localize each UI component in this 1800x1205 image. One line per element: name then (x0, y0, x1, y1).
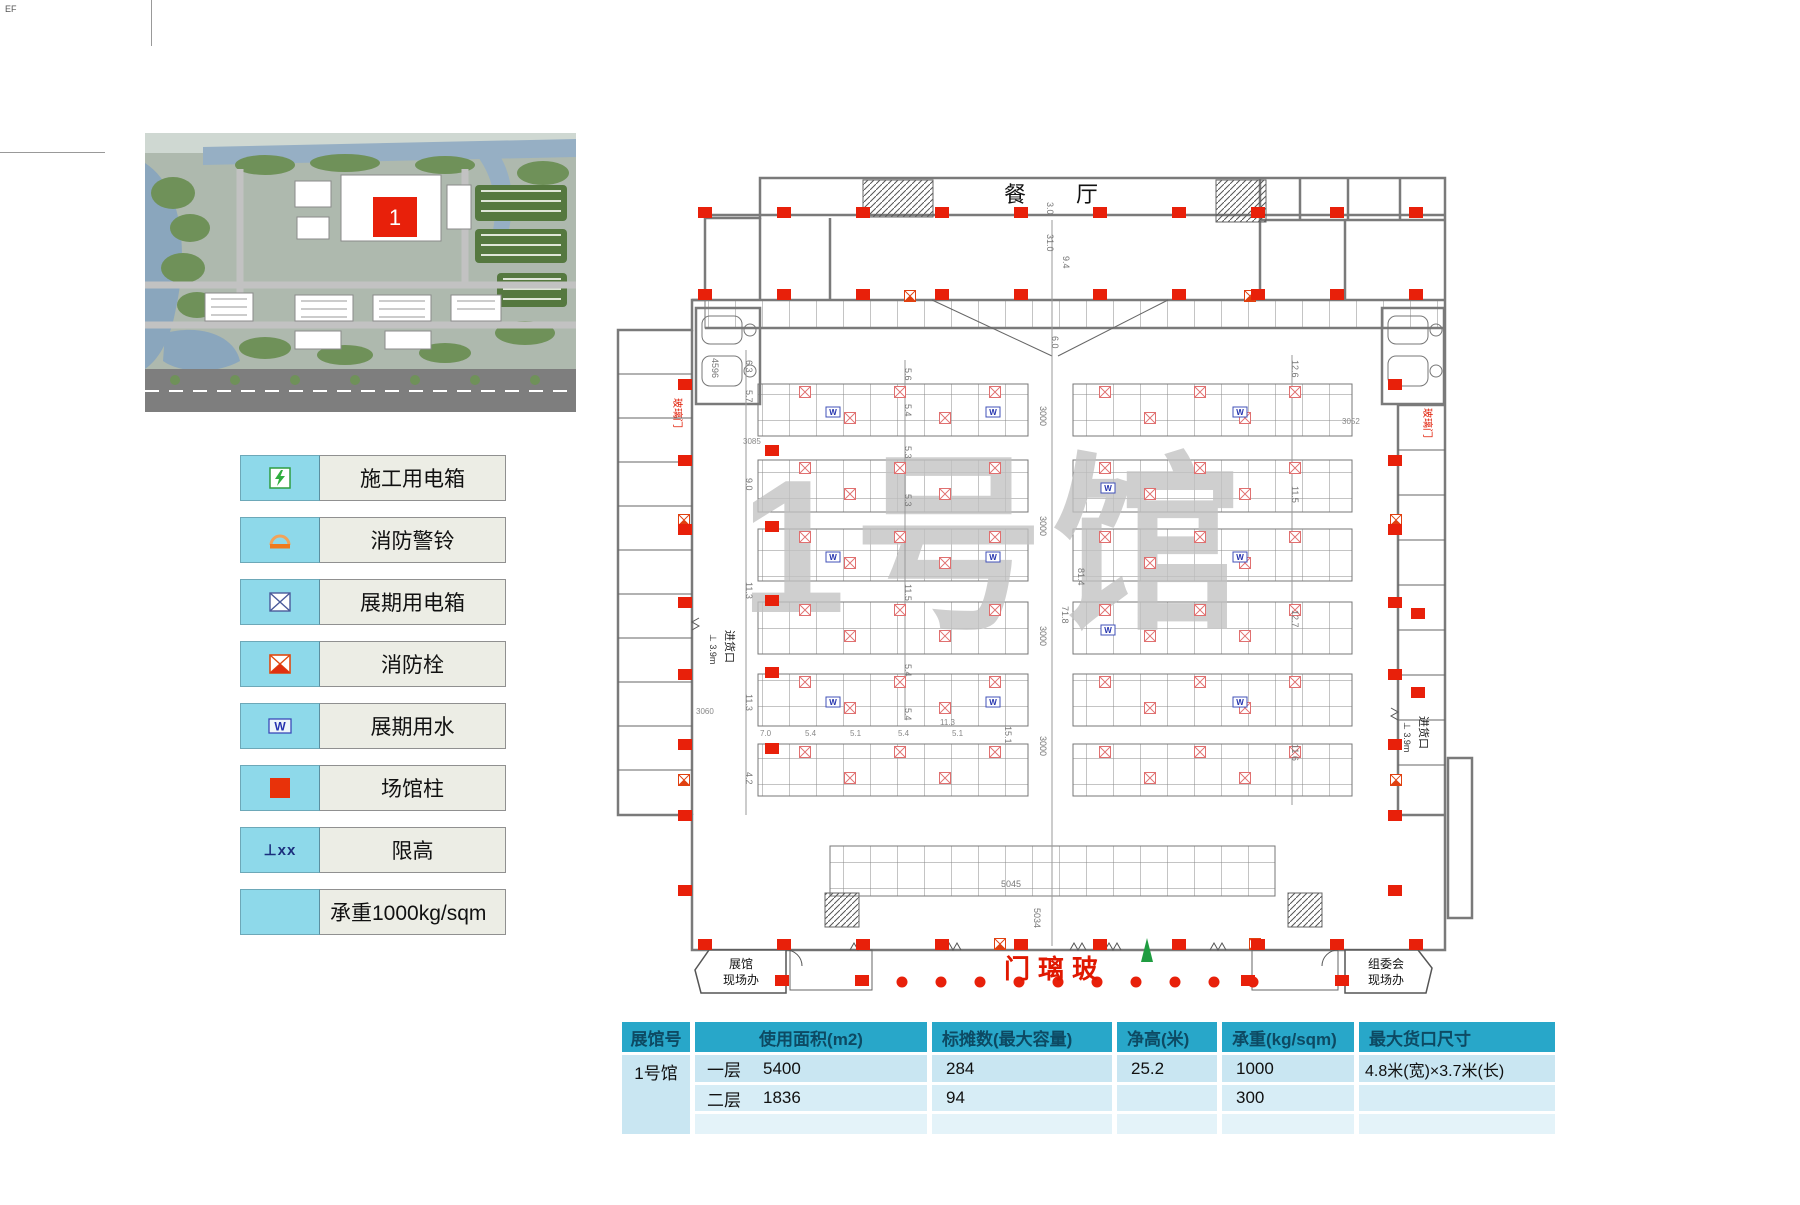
crop-mark-vertical (151, 0, 152, 46)
svg-text:5.4: 5.4 (903, 404, 913, 417)
svg-text:5.4: 5.4 (898, 729, 910, 738)
booths-value: 284 (932, 1055, 1112, 1082)
red-square-icon (240, 765, 320, 811)
legend-label: 场馆柱 (320, 765, 506, 811)
col-header-height: 净高(米) (1117, 1022, 1217, 1052)
svg-text:11.5: 11.5 (1290, 486, 1300, 503)
booths-value: 94 (932, 1085, 1112, 1111)
height-limit-icon: ⊥xx (240, 827, 320, 873)
svg-text:12.6: 12.6 (1290, 360, 1300, 378)
spec-table: 展馆号 使用面积(m2) 标摊数(最大容量) 净高(米) 承重(kg/sqm) … (622, 1022, 1555, 1134)
svg-text:展馆: 展馆 (729, 956, 753, 971)
legend-label: 限高 (320, 827, 506, 873)
water-box-icon: W (240, 703, 320, 749)
table-empty-cell (1359, 1114, 1555, 1134)
svg-text:3000: 3000 (1038, 626, 1048, 646)
svg-text:5.4: 5.4 (903, 664, 913, 677)
svg-text:3060: 3060 (696, 707, 714, 716)
svg-text:3000: 3000 (1038, 406, 1048, 426)
svg-text:6.3: 6.3 (744, 360, 754, 373)
svg-text:12.7: 12.7 (1290, 610, 1300, 628)
glass-door-label: 门璃玻 (1004, 954, 1106, 984)
svg-text:5034: 5034 (1032, 908, 1042, 928)
col-header-gate: 最大货口尺寸 (1359, 1022, 1555, 1052)
site-map: 1 (145, 133, 576, 412)
svg-text:71.8: 71.8 (1060, 606, 1070, 624)
svg-text:3085: 3085 (743, 437, 761, 446)
legend-row-exhibition-power: 展期用电箱 (240, 579, 506, 625)
svg-text:5.3: 5.3 (903, 494, 913, 507)
svg-text:现场办: 现场办 (1368, 972, 1404, 987)
hall-name-cell: 1号馆 (622, 1055, 690, 1134)
table-empty-cell (695, 1114, 927, 1134)
hydrant-icon (240, 641, 320, 687)
hall-1-map-label: 1 (389, 205, 401, 230)
blank-cyan-icon (240, 889, 320, 935)
table-empty-cell (1222, 1114, 1354, 1134)
legend-label: 施工用电箱 (320, 455, 506, 501)
height-value (1117, 1085, 1217, 1111)
gate-size-value: 4.8米(宽)×3.7米(长) (1359, 1055, 1555, 1082)
loading-dock-right-label: 进货口 (1417, 716, 1431, 749)
legend-label: 承重1000kg/sqm (320, 889, 506, 935)
svg-text:5.4: 5.4 (805, 729, 817, 738)
load-value: 1000 (1222, 1055, 1354, 1082)
legend: 施工用电箱 消防警铃 展期用电箱 (240, 455, 506, 951)
crop-mark-horizontal (0, 152, 105, 153)
corner-mark: EF (5, 4, 17, 14)
glass-door-right-label: 玻璃门 (1421, 408, 1434, 438)
load-value: 300 (1222, 1085, 1354, 1111)
table-row: 一层 5400 (695, 1055, 927, 1082)
site-map-image: 1 (145, 133, 576, 412)
col-header-load: 承重(kg/sqm) (1222, 1022, 1354, 1052)
svg-text:15.1: 15.1 (1003, 726, 1013, 744)
floor-label: 一层 (695, 1056, 763, 1081)
table-empty-cell (1117, 1114, 1217, 1134)
svg-text:4.2: 4.2 (744, 772, 754, 785)
svg-text:5.1: 5.1 (850, 729, 862, 738)
svg-text:5.4: 5.4 (903, 708, 913, 721)
floor-plan: W 1号馆 (600, 160, 1480, 1020)
legend-row-load-capacity: 承重1000kg/sqm (240, 889, 506, 935)
svg-text:11.3: 11.3 (744, 694, 754, 711)
svg-text:3052: 3052 (1342, 417, 1360, 426)
svg-text:现场办: 现场办 (723, 972, 759, 987)
svg-text:5.3: 5.3 (903, 446, 913, 459)
svg-text:7.0: 7.0 (760, 729, 772, 738)
svg-text:9.4: 9.4 (1061, 256, 1071, 269)
col-header-area: 使用面积(m2) (695, 1022, 927, 1052)
floor-label: 二层 (695, 1086, 763, 1111)
svg-text:11.5: 11.5 (903, 584, 913, 601)
svg-text:9.0: 9.0 (744, 478, 754, 491)
legend-row-fire-bell: 消防警铃 (240, 517, 506, 563)
loading-height-right: ⊥ 3.9m (1402, 722, 1412, 752)
svg-text:W: W (274, 720, 286, 734)
svg-text:11.3: 11.3 (940, 718, 956, 727)
area-value: 1836 (763, 1088, 801, 1108)
svg-text:组委会: 组委会 (1368, 957, 1404, 971)
height-value: 25.2 (1117, 1055, 1217, 1082)
svg-text:5.6: 5.6 (903, 368, 913, 381)
table-empty-cell (932, 1114, 1112, 1134)
svg-text:5.7: 5.7 (744, 390, 754, 403)
svg-text:4596: 4596 (710, 358, 720, 378)
loading-dock-left-label: 进货口 (723, 630, 737, 663)
svg-text:3000: 3000 (1038, 736, 1048, 756)
legend-row-fire-hydrant: 消防栓 (240, 641, 506, 687)
lightning-icon (240, 455, 320, 501)
svg-text:3000: 3000 (1038, 516, 1048, 536)
svg-text:6.0: 6.0 (1050, 336, 1060, 349)
restaurant-label: 餐 厅 (1004, 182, 1112, 207)
legend-row-height-limit: ⊥xx 限高 (240, 827, 506, 873)
legend-label: 消防警铃 (320, 517, 506, 563)
svg-text:11.6: 11.6 (1290, 744, 1300, 761)
legend-label: 消防栓 (320, 641, 506, 687)
loading-height-left: ⊥ 3.9m (708, 634, 718, 664)
legend-label: 展期用电箱 (320, 579, 506, 625)
bell-icon (240, 517, 320, 563)
table-row: 二层 1836 (695, 1085, 927, 1111)
area-value: 5400 (763, 1059, 801, 1079)
svg-text:11.3: 11.3 (744, 582, 754, 599)
svg-text:81.4: 81.4 (1076, 568, 1086, 586)
svg-text:5.1: 5.1 (952, 729, 964, 738)
svg-text:31.0: 31.0 (1045, 234, 1055, 252)
glass-door-left-label: 玻璃门 (671, 398, 684, 428)
col-header-hall: 展馆号 (622, 1022, 690, 1052)
legend-row-exhibition-water: W 展期用水 (240, 703, 506, 749)
legend-label: 展期用水 (320, 703, 506, 749)
legend-row-construction-power: 施工用电箱 (240, 455, 506, 501)
svg-text:3.0: 3.0 (1045, 202, 1055, 215)
page: EF (0, 0, 1800, 1205)
legend-row-venue-column: 场馆柱 (240, 765, 506, 811)
gate-size-value (1359, 1085, 1555, 1111)
entry-cell-strip (705, 300, 1445, 328)
svg-text:5045: 5045 (1001, 879, 1021, 889)
col-header-booths: 标摊数(最大容量) (932, 1022, 1112, 1052)
crossed-box-icon (240, 579, 320, 625)
